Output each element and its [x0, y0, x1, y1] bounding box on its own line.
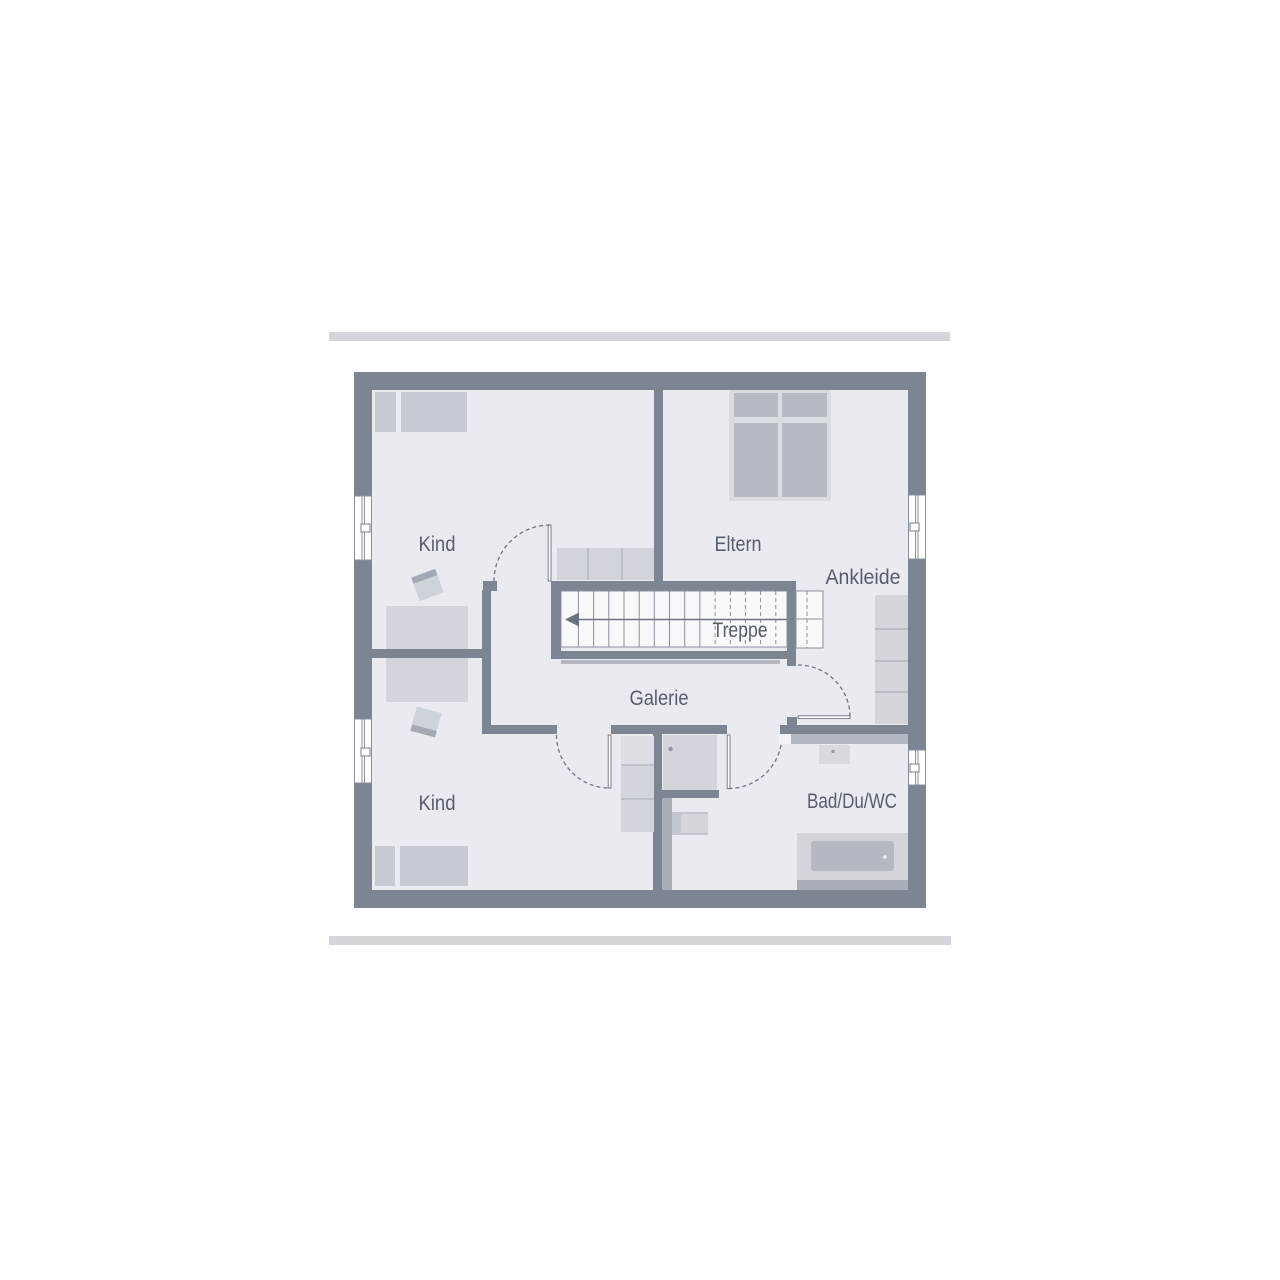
svg-text:Treppe: Treppe — [713, 619, 768, 642]
svg-text:Eltern: Eltern — [715, 533, 762, 556]
svg-text:Bad/Du/WC: Bad/Du/WC — [807, 790, 897, 813]
svg-text:Galerie: Galerie — [630, 687, 689, 710]
svg-text:Kind: Kind — [419, 792, 456, 815]
svg-text:Ankleide: Ankleide — [826, 566, 901, 589]
svg-text:Kind: Kind — [419, 533, 456, 556]
